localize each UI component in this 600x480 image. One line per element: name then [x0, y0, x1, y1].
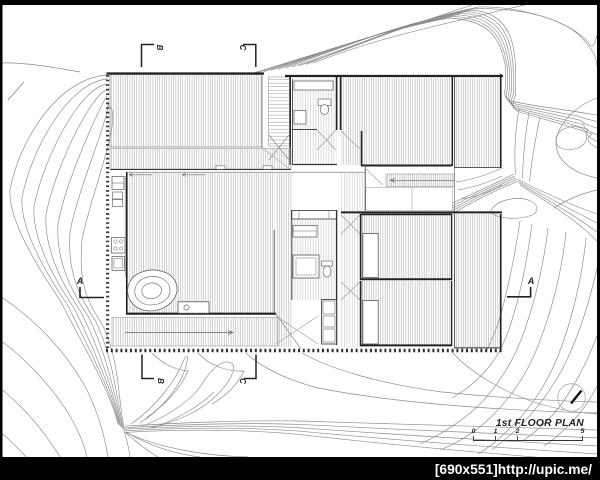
svg-text:1: 1 — [494, 428, 498, 435]
svg-text:0: 0 — [472, 428, 476, 435]
svg-text:2: 2 — [515, 428, 520, 435]
svg-text:A: A — [527, 276, 535, 286]
svg-text:B: B — [156, 378, 165, 384]
svg-text:5: 5 — [581, 428, 585, 435]
svg-text:C: C — [238, 378, 247, 384]
svg-text:B: B — [155, 45, 164, 51]
svg-text:A: A — [76, 276, 84, 286]
svg-text:[690x551]http://upic.me/: [690x551]http://upic.me/ — [435, 462, 592, 477]
svg-text:1st FLOOR PLAN: 1st FLOOR PLAN — [496, 418, 584, 429]
svg-text:C: C — [238, 45, 247, 51]
